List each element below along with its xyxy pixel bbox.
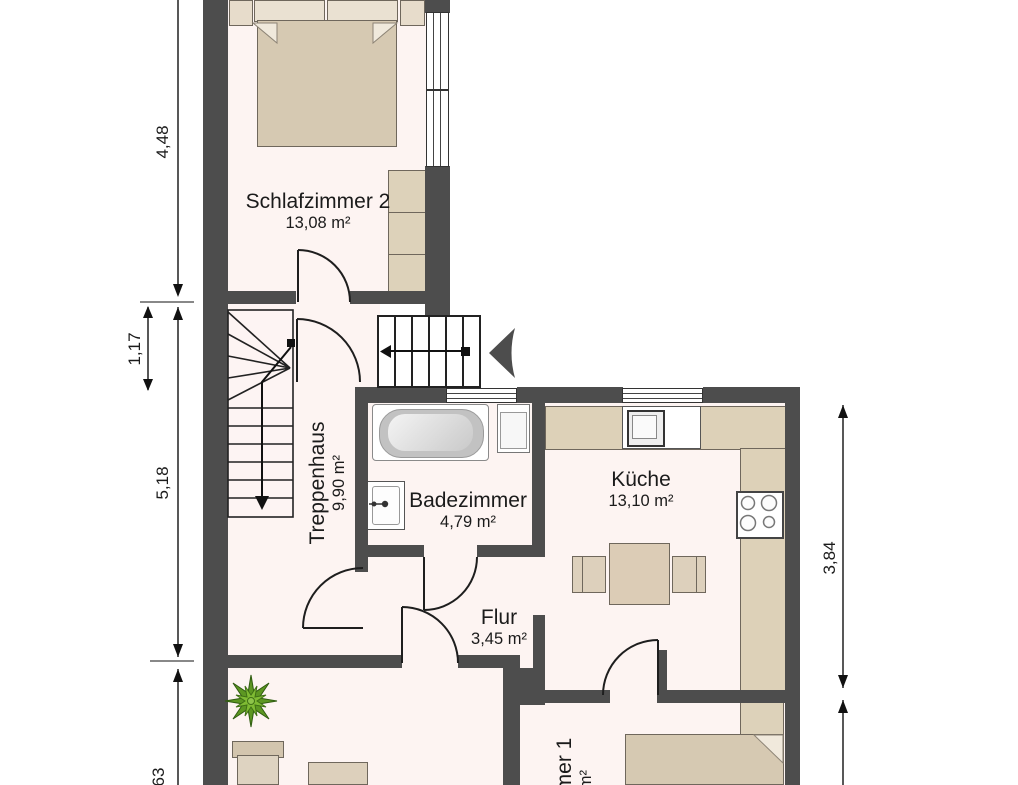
door-badezimmer — [424, 557, 477, 610]
room-area: 4,79 m² — [383, 513, 553, 532]
room-area: 9,90 m² — [330, 408, 349, 558]
dimension-label-left-bottom: 63 — [149, 747, 169, 785]
dimension-label-left-top: 4,48 — [153, 112, 173, 172]
stove-burners — [741, 496, 777, 531]
door-landing — [297, 319, 360, 382]
dimension-label-left-landing: 1,17 — [125, 319, 145, 379]
room-name: Badezimmer — [383, 489, 553, 513]
blanket-fold-left — [253, 23, 277, 43]
door-schlafzimmer2 — [298, 250, 350, 302]
room-label-schlafzimmer1: Schlafzimmer 1 m² — [553, 725, 597, 785]
winder-staircase — [228, 310, 293, 517]
plant-icon — [225, 675, 277, 727]
dimension-label-right: 3,84 — [820, 528, 840, 588]
room-name: Flur — [414, 606, 584, 630]
blanket-fold-bed1 — [754, 735, 783, 763]
room-label-schlafzimmer2: Schlafzimmer 2 13,08 m² — [233, 190, 403, 233]
entrance-arrow-icon — [489, 328, 515, 378]
room-label-kueche: Küche 13,10 m² — [556, 468, 726, 511]
room-area: 13,08 m² — [233, 214, 403, 233]
room-area: 13,10 m² — [556, 492, 726, 511]
floor-plan: Schlafzimmer 2 13,08 m² Badezimmer 4,79 … — [0, 0, 1018, 785]
room-label-flur: Flur 3,45 m² — [414, 606, 584, 649]
room-name: Küche — [556, 468, 726, 492]
room-name: Schlafzimmer 2 — [233, 190, 403, 214]
room-name: Treppenhaus — [306, 408, 330, 558]
blanket-fold-right — [373, 23, 397, 43]
door-treppenhaus-flur — [303, 568, 363, 628]
dimension-label-left-lower: 5,18 — [153, 453, 173, 513]
room-label-badezimmer: Badezimmer 4,79 m² — [383, 489, 553, 532]
room-name: Schlafzimmer 1 — [553, 725, 577, 785]
room-area: m² — [577, 725, 596, 785]
room-area: 3,45 m² — [414, 630, 584, 649]
room-label-treppenhaus: Treppenhaus 9,90 m² — [306, 408, 350, 558]
door-kueche — [603, 640, 658, 695]
